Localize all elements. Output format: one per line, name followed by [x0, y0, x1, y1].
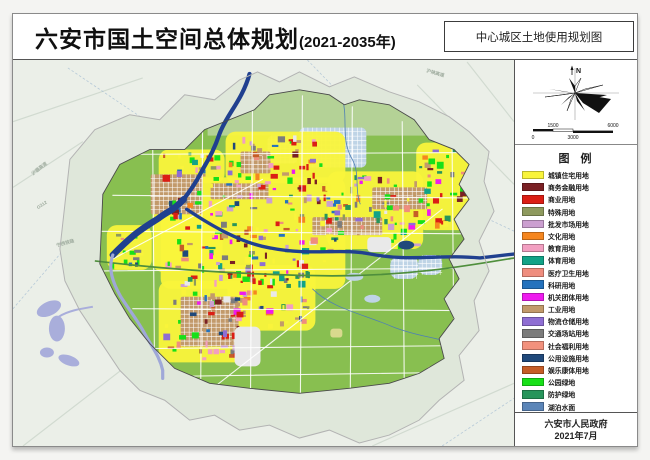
legend-item: 物流仓储用地 [522, 316, 632, 326]
legend-item: 公用设施用地 [522, 353, 632, 363]
legend-swatch [522, 195, 544, 204]
legend-label: 机关团体用地 [548, 292, 589, 302]
legend-items: 城镇住宅用地商务金融用地商业用地特殊用地批发市场用地文化用地教育用地体育用地医疗… [522, 170, 632, 412]
legend-item: 社会福利用地 [522, 341, 632, 351]
legend-item: 商务金融用地 [522, 182, 632, 192]
svg-text:N: N [576, 68, 581, 75]
svg-text:3000: 3000 [567, 135, 578, 141]
legend-swatch [522, 305, 544, 314]
svg-text:6000: 6000 [607, 123, 618, 129]
legend-item: 交通场站用地 [522, 328, 632, 338]
legend-swatch [522, 354, 544, 363]
legend-item: 防护绿地 [522, 389, 632, 399]
legend-item: 文化用地 [522, 231, 632, 241]
legend-label: 商务金融用地 [548, 182, 589, 192]
legend-swatch [522, 317, 544, 326]
north-arrow-icon: N [571, 66, 582, 76]
map-subtitle-box: 中心城区土地使用规划图 [444, 21, 634, 52]
legend-label: 体育用地 [548, 255, 575, 265]
legend-label: 文化用地 [548, 231, 575, 241]
legend-title: 图 例 [522, 150, 632, 166]
legend-swatch [522, 268, 544, 277]
legend-label: 特殊用地 [548, 207, 575, 217]
legend-label: 科研用地 [548, 280, 575, 290]
legend-swatch [522, 293, 544, 302]
svg-text:0: 0 [532, 135, 535, 141]
legend-item: 城镇住宅用地 [522, 170, 632, 180]
legend-swatch [522, 378, 544, 387]
legend-panel: 图 例 城镇住宅用地商务金融用地商业用地特殊用地批发市场用地文化用地教育用地体育… [515, 145, 637, 412]
legend-label: 医疗卫生用地 [548, 268, 589, 278]
legend-item: 医疗卫生用地 [522, 268, 632, 278]
legend-swatch [522, 390, 544, 399]
credit-date: 2021年7月 [554, 430, 597, 442]
legend-label: 物流仓储用地 [548, 316, 589, 326]
legend-label: 城镇住宅用地 [548, 170, 589, 180]
legend-label: 商业用地 [548, 194, 575, 204]
page-title: 六安市国土空间总体规划(2021-2035年) [35, 20, 396, 54]
legend-label: 娱乐康体用地 [548, 365, 589, 375]
plan-sheet: 六安市国土空间总体规划(2021-2035年) 中心城区土地使用规划图 沪蓉高速… [12, 13, 638, 447]
scale-bar: 1500 6000 0 3000 [532, 123, 619, 141]
legend-label: 湖泊水面 [548, 402, 575, 412]
page-title-main: 六安市国土空间总体规划 [35, 26, 299, 52]
legend-item: 特殊用地 [522, 207, 632, 217]
legend-label: 防护绿地 [548, 389, 575, 399]
credit-authority: 六安市人民政府 [544, 418, 607, 430]
title-bar: 六安市国土空间总体规划(2021-2035年) 中心城区土地使用规划图 [13, 14, 637, 60]
legend-item: 湖泊水面 [522, 402, 632, 412]
landuse-map: 沪蓉高速G312宁西铁路沪陕高速 [13, 60, 514, 446]
legend-swatch [522, 220, 544, 229]
legend-swatch [522, 207, 544, 216]
legend-swatch [522, 402, 544, 411]
legend-item: 娱乐康体用地 [522, 365, 632, 375]
legend-label: 工业用地 [548, 304, 575, 314]
compass-panel: N 1500 6000 [515, 60, 637, 145]
legend-label: 教育用地 [548, 243, 575, 253]
legend-label: 公用设施用地 [548, 353, 589, 363]
page-title-years: (2021-2035年) [299, 34, 396, 51]
legend-swatch [522, 280, 544, 289]
legend-swatch [522, 232, 544, 241]
legend-label: 公园绿地 [548, 377, 575, 387]
legend-swatch [522, 329, 544, 338]
legend-label: 交通场站用地 [548, 328, 589, 338]
legend-item: 教育用地 [522, 243, 632, 253]
legend-swatch [522, 341, 544, 350]
sidebar: N 1500 6000 [514, 60, 637, 446]
legend-swatch [522, 244, 544, 253]
map-canvas: 沪蓉高速G312宁西铁路沪陕高速 [13, 60, 514, 446]
legend-swatch [522, 366, 544, 375]
credit-box: 六安市人民政府 2021年7月 [515, 412, 637, 446]
svg-text:1500: 1500 [547, 123, 558, 129]
map-subtitle: 中心城区土地使用规划图 [476, 29, 603, 45]
legend-label: 社会福利用地 [548, 341, 589, 351]
legend-swatch [522, 183, 544, 192]
legend-item: 公园绿地 [522, 377, 632, 387]
legend-item: 体育用地 [522, 255, 632, 265]
legend-item: 科研用地 [522, 280, 632, 290]
legend-item: 批发市场用地 [522, 219, 632, 229]
legend-item: 商业用地 [522, 194, 632, 204]
legend-label: 批发市场用地 [548, 219, 589, 229]
legend-item: 机关团体用地 [522, 292, 632, 302]
legend-swatch [522, 171, 544, 180]
legend-item: 工业用地 [522, 304, 632, 314]
compass-rose-icon: N 1500 6000 [515, 60, 637, 144]
legend-swatch [522, 256, 544, 265]
